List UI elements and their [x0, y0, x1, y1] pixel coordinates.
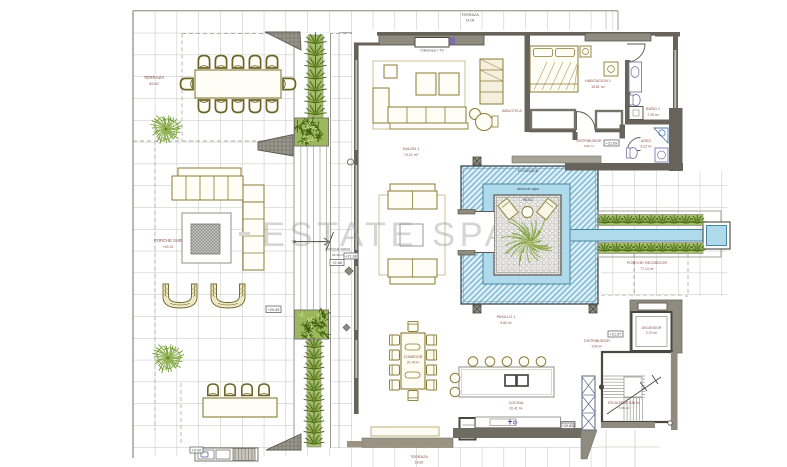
- svg-text:TERRAZA: TERRAZA: [410, 455, 428, 459]
- svg-text:+21.68: +21.68: [345, 255, 357, 259]
- svg-text:20.41 m²: 20.41 m²: [509, 407, 523, 411]
- svg-text:2.70 m²: 2.70 m²: [646, 331, 658, 335]
- svg-text:74.21 m²: 74.21 m²: [404, 153, 419, 157]
- svg-text:5.86 m²: 5.86 m²: [619, 406, 630, 410]
- svg-text:lámina de agua: lámina de agua: [517, 187, 539, 191]
- svg-text:+43.31: +43.31: [162, 245, 173, 249]
- svg-text:+2.68: +2.68: [332, 261, 342, 265]
- svg-text:HABITACION 1: HABITACION 1: [585, 79, 611, 83]
- svg-text:BIBLIOTECA: BIBLIOTECA: [502, 109, 522, 113]
- svg-text:COCINA: COCINA: [509, 401, 524, 405]
- svg-text:TERRAZA: TERRAZA: [461, 13, 479, 17]
- svg-text:SALON 1: SALON 1: [403, 146, 421, 151]
- svg-text:TERRAZA: TERRAZA: [144, 75, 165, 80]
- svg-text:+20.49: +20.49: [268, 308, 280, 312]
- svg-text:BAÑO 1: BAÑO 1: [646, 106, 660, 111]
- svg-text:ESCALERAS 5.86 m²: ESCALERAS 5.86 m²: [608, 401, 641, 405]
- svg-text:9.80 m²: 9.80 m²: [500, 321, 512, 325]
- svg-text:15.81 m²: 15.81 m²: [591, 85, 605, 89]
- svg-text:COMEDOR: COMEDOR: [404, 355, 423, 359]
- svg-text:20.78 m²: 20.78 m²: [407, 361, 420, 365]
- svg-text:77.14 m²: 77.14 m²: [640, 267, 654, 271]
- svg-text:9.50 m²: 9.50 m²: [592, 345, 603, 349]
- svg-text:Chimenea + TV: Chimenea + TV: [420, 49, 444, 53]
- svg-text:3.22 m²: 3.22 m²: [640, 145, 652, 149]
- svg-text:69.82: 69.82: [149, 82, 159, 86]
- svg-text:+21.67: +21.67: [610, 333, 622, 337]
- svg-text:14.04: 14.04: [466, 19, 475, 23]
- svg-text:6.80 m²: 6.80 m²: [584, 144, 595, 148]
- svg-text:+21.69: +21.69: [606, 142, 618, 146]
- svg-text:DISTRIBUIDOR: DISTRIBUIDOR: [584, 339, 610, 343]
- svg-text:7.29 m²: 7.29 m²: [647, 113, 659, 117]
- svg-text:ASEO: ASEO: [641, 139, 652, 143]
- svg-text:PATIO: PATIO: [523, 198, 533, 202]
- svg-text:19.60: 19.60: [415, 461, 424, 465]
- svg-text:ASCENSOR: ASCENSOR: [642, 326, 662, 330]
- svg-text:PORCHE SUR: PORCHE SUR: [154, 238, 182, 243]
- svg-text:+20.85: +20.85: [562, 424, 574, 428]
- svg-text:DISTRIBUIDOR: DISTRIBUIDOR: [576, 139, 602, 143]
- svg-text:+0.00: +0.00: [192, 449, 202, 453]
- svg-text:ESTANQUE: ESTANQUE: [518, 169, 539, 173]
- svg-text:PORCHE RECIBIDOR: PORCHE RECIBIDOR: [627, 260, 668, 265]
- svg-text:PASILLO 1: PASILLO 1: [497, 315, 516, 319]
